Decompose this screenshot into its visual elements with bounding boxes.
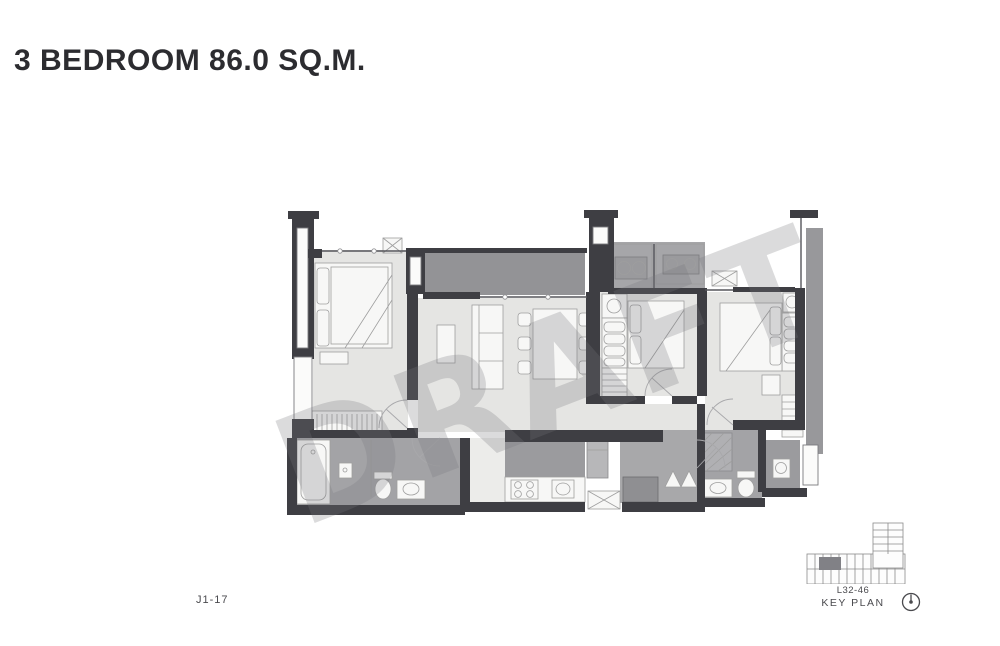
vanity-2 — [704, 479, 732, 497]
ac-unit-icon-2 — [712, 271, 737, 286]
key-plan: L32-46 KEY PLAN — [795, 518, 935, 628]
right-ledge-panel — [803, 445, 818, 485]
key-plan-label: KEY PLAN — [798, 597, 908, 609]
key-plan-levels: L32-46 — [808, 585, 898, 596]
north-arrow-icon — [900, 591, 922, 613]
bedroom2-wardrobe — [602, 294, 627, 398]
shower-valve — [339, 463, 352, 478]
shower-2 — [702, 433, 732, 471]
right-exterior-band — [806, 228, 823, 454]
master-bed — [315, 263, 392, 348]
washing-machine — [773, 459, 790, 478]
unit-location-highlight — [819, 557, 841, 570]
corridor-floor — [465, 438, 505, 508]
duct-shaft — [410, 257, 421, 285]
master-bench — [320, 352, 348, 364]
shaft-window — [593, 227, 608, 244]
tv-console — [437, 325, 455, 363]
bedroom2-bed — [628, 301, 684, 368]
bathtub — [297, 440, 330, 504]
refrigerator — [587, 441, 608, 478]
shoe-cabinet — [623, 477, 658, 502]
toilet-2 — [737, 471, 755, 497]
balcony-door-left — [294, 357, 312, 421]
dining-set — [518, 309, 592, 379]
key-plan-building-icon — [795, 518, 915, 584]
floor-plan-page: 3 BEDROOM 86.0 SQ.M. — [0, 0, 1000, 646]
kitchen-floor — [505, 442, 585, 477]
sofa — [472, 305, 503, 389]
unit-number-label: J1-17 — [196, 594, 229, 606]
balcony-floor — [423, 253, 585, 295]
entry-doormat — [588, 491, 620, 509]
kitchen-counter — [505, 477, 585, 502]
toilet-1 — [374, 472, 392, 499]
window-left — [297, 228, 308, 348]
vanity-1 — [397, 480, 425, 499]
